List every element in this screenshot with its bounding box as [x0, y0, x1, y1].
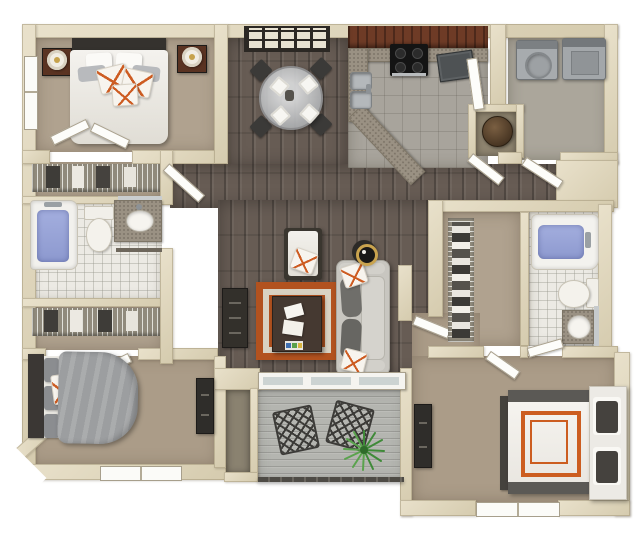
sliding-glass-door	[258, 372, 406, 390]
floor-plan-render	[0, 0, 639, 533]
dresser-handle	[419, 422, 427, 424]
glass-pane	[311, 377, 351, 385]
faucet-icon	[366, 84, 371, 94]
lamp-bulb	[362, 250, 366, 254]
wall-closet2-bed2-b	[138, 348, 218, 360]
wall-niche-left	[468, 104, 476, 158]
dryer	[562, 38, 606, 80]
wall-suite-bottom-c	[562, 346, 618, 358]
tray-item	[286, 343, 291, 348]
patio-railing	[258, 477, 404, 482]
wall-bedroom3-left	[400, 368, 412, 516]
faucet-icon	[44, 202, 62, 207]
bed2-duvet	[57, 351, 139, 444]
bathtub-water	[37, 210, 69, 262]
dresser-handle	[201, 394, 209, 396]
stove-burner	[412, 48, 423, 59]
glass-pane	[359, 377, 399, 385]
tray-item	[298, 343, 302, 348]
table-book	[284, 303, 304, 319]
wall-leftcol-right-b	[160, 248, 173, 364]
faucet-icon	[585, 232, 591, 248]
toilet-bowl	[86, 218, 112, 252]
wall-bedroom1-bottom-a	[22, 150, 50, 164]
wall-closet3-left	[428, 200, 443, 317]
wall-laundry-bottom-a	[498, 152, 522, 164]
mirror	[118, 196, 162, 200]
bedroom1-window	[24, 56, 38, 130]
lamp-icon	[47, 50, 67, 70]
lamp-finial	[189, 54, 195, 60]
wall-bath2-right	[598, 204, 612, 354]
folded-clothes	[452, 222, 470, 338]
stove	[390, 44, 428, 76]
washer	[516, 40, 558, 80]
vanity2-sink	[567, 315, 591, 339]
table-book	[282, 320, 304, 337]
wall-kitchen-laundry	[490, 24, 506, 108]
towel-bar	[116, 248, 162, 252]
coffee-table	[272, 296, 322, 352]
faucet-icon	[136, 204, 142, 210]
wall-storage-right	[250, 388, 258, 478]
tray-item	[292, 343, 297, 348]
hanging-clothes	[46, 166, 60, 188]
wall-bedroom3-bottom-a	[400, 500, 476, 516]
wall-shelf-unit	[244, 26, 330, 52]
bed3-blanket-band	[508, 482, 590, 494]
glass-pane	[263, 377, 303, 385]
toilet-bowl	[558, 280, 590, 308]
lamp-icon	[182, 47, 202, 67]
window-mullion	[140, 467, 142, 480]
wall-bedroom1-right	[214, 24, 228, 164]
window-mullion	[517, 503, 519, 516]
lamp-finial	[54, 57, 60, 63]
dresser	[196, 378, 214, 434]
console-handle	[229, 302, 241, 304]
table-tray	[285, 341, 303, 350]
bed2-headboard	[28, 354, 44, 438]
washer-controls	[517, 41, 557, 49]
hanging-clothes	[98, 310, 112, 332]
stove-handle	[392, 73, 426, 76]
bed3-duvet	[508, 390, 590, 494]
table-vase	[285, 90, 294, 101]
mirror	[594, 306, 599, 346]
bathtub-water	[538, 225, 584, 259]
wall-closet3-bath2	[520, 212, 529, 346]
bed3-headboard-bench	[589, 386, 627, 500]
dresser-handle	[201, 414, 209, 416]
wall-suite-top	[428, 200, 614, 212]
console-handle	[229, 332, 241, 334]
bed3-orange-frame-inner	[530, 420, 568, 464]
vanity1-sink	[126, 210, 154, 232]
stove-burner	[412, 62, 423, 73]
closet1-wire-shelf	[32, 164, 160, 192]
patio-storage-floor	[226, 390, 250, 474]
dresser-handle	[419, 446, 427, 448]
bedroom2-window	[100, 466, 182, 481]
hanging-clothes	[126, 311, 138, 331]
potted-plant-icon	[340, 426, 388, 474]
wall-bedroom3-bottom-b	[558, 500, 630, 516]
wall-living-hall2-stub	[398, 265, 412, 321]
bed3-blanket-band	[508, 390, 590, 402]
window-mullion	[25, 91, 37, 93]
bed3-dark-pillow	[596, 401, 618, 433]
dresser	[414, 404, 432, 468]
hanging-clothes	[72, 166, 84, 188]
stove-burner	[395, 48, 406, 59]
wall-living-patio	[214, 368, 260, 390]
water-heater	[482, 116, 513, 147]
sofa-seat	[361, 276, 385, 360]
bed1-accent-pillow	[111, 83, 138, 107]
wall-storage-bottom	[224, 472, 258, 482]
dryer-top	[571, 51, 599, 75]
closet2-wire-shelf	[32, 308, 160, 336]
hanging-clothes	[44, 310, 58, 332]
wall-niche-right	[516, 104, 524, 158]
walkin-wire-shelf	[448, 218, 474, 342]
washer-lid	[525, 52, 552, 79]
hanging-clothes	[70, 310, 82, 332]
bedroom3-window	[476, 502, 560, 517]
wall-bath1-closet2	[22, 298, 170, 307]
stove-burner	[395, 62, 406, 73]
table-lamp-icon	[356, 244, 378, 266]
media-console	[222, 288, 248, 348]
wall-suite-bottom-a	[428, 346, 484, 358]
bed3-dark-pillow	[596, 451, 618, 483]
hanging-clothes	[96, 166, 110, 188]
wall-laundry-right	[604, 24, 618, 164]
console-handle	[229, 317, 241, 319]
hanging-clothes	[124, 167, 136, 187]
dryer-controls	[563, 39, 605, 47]
